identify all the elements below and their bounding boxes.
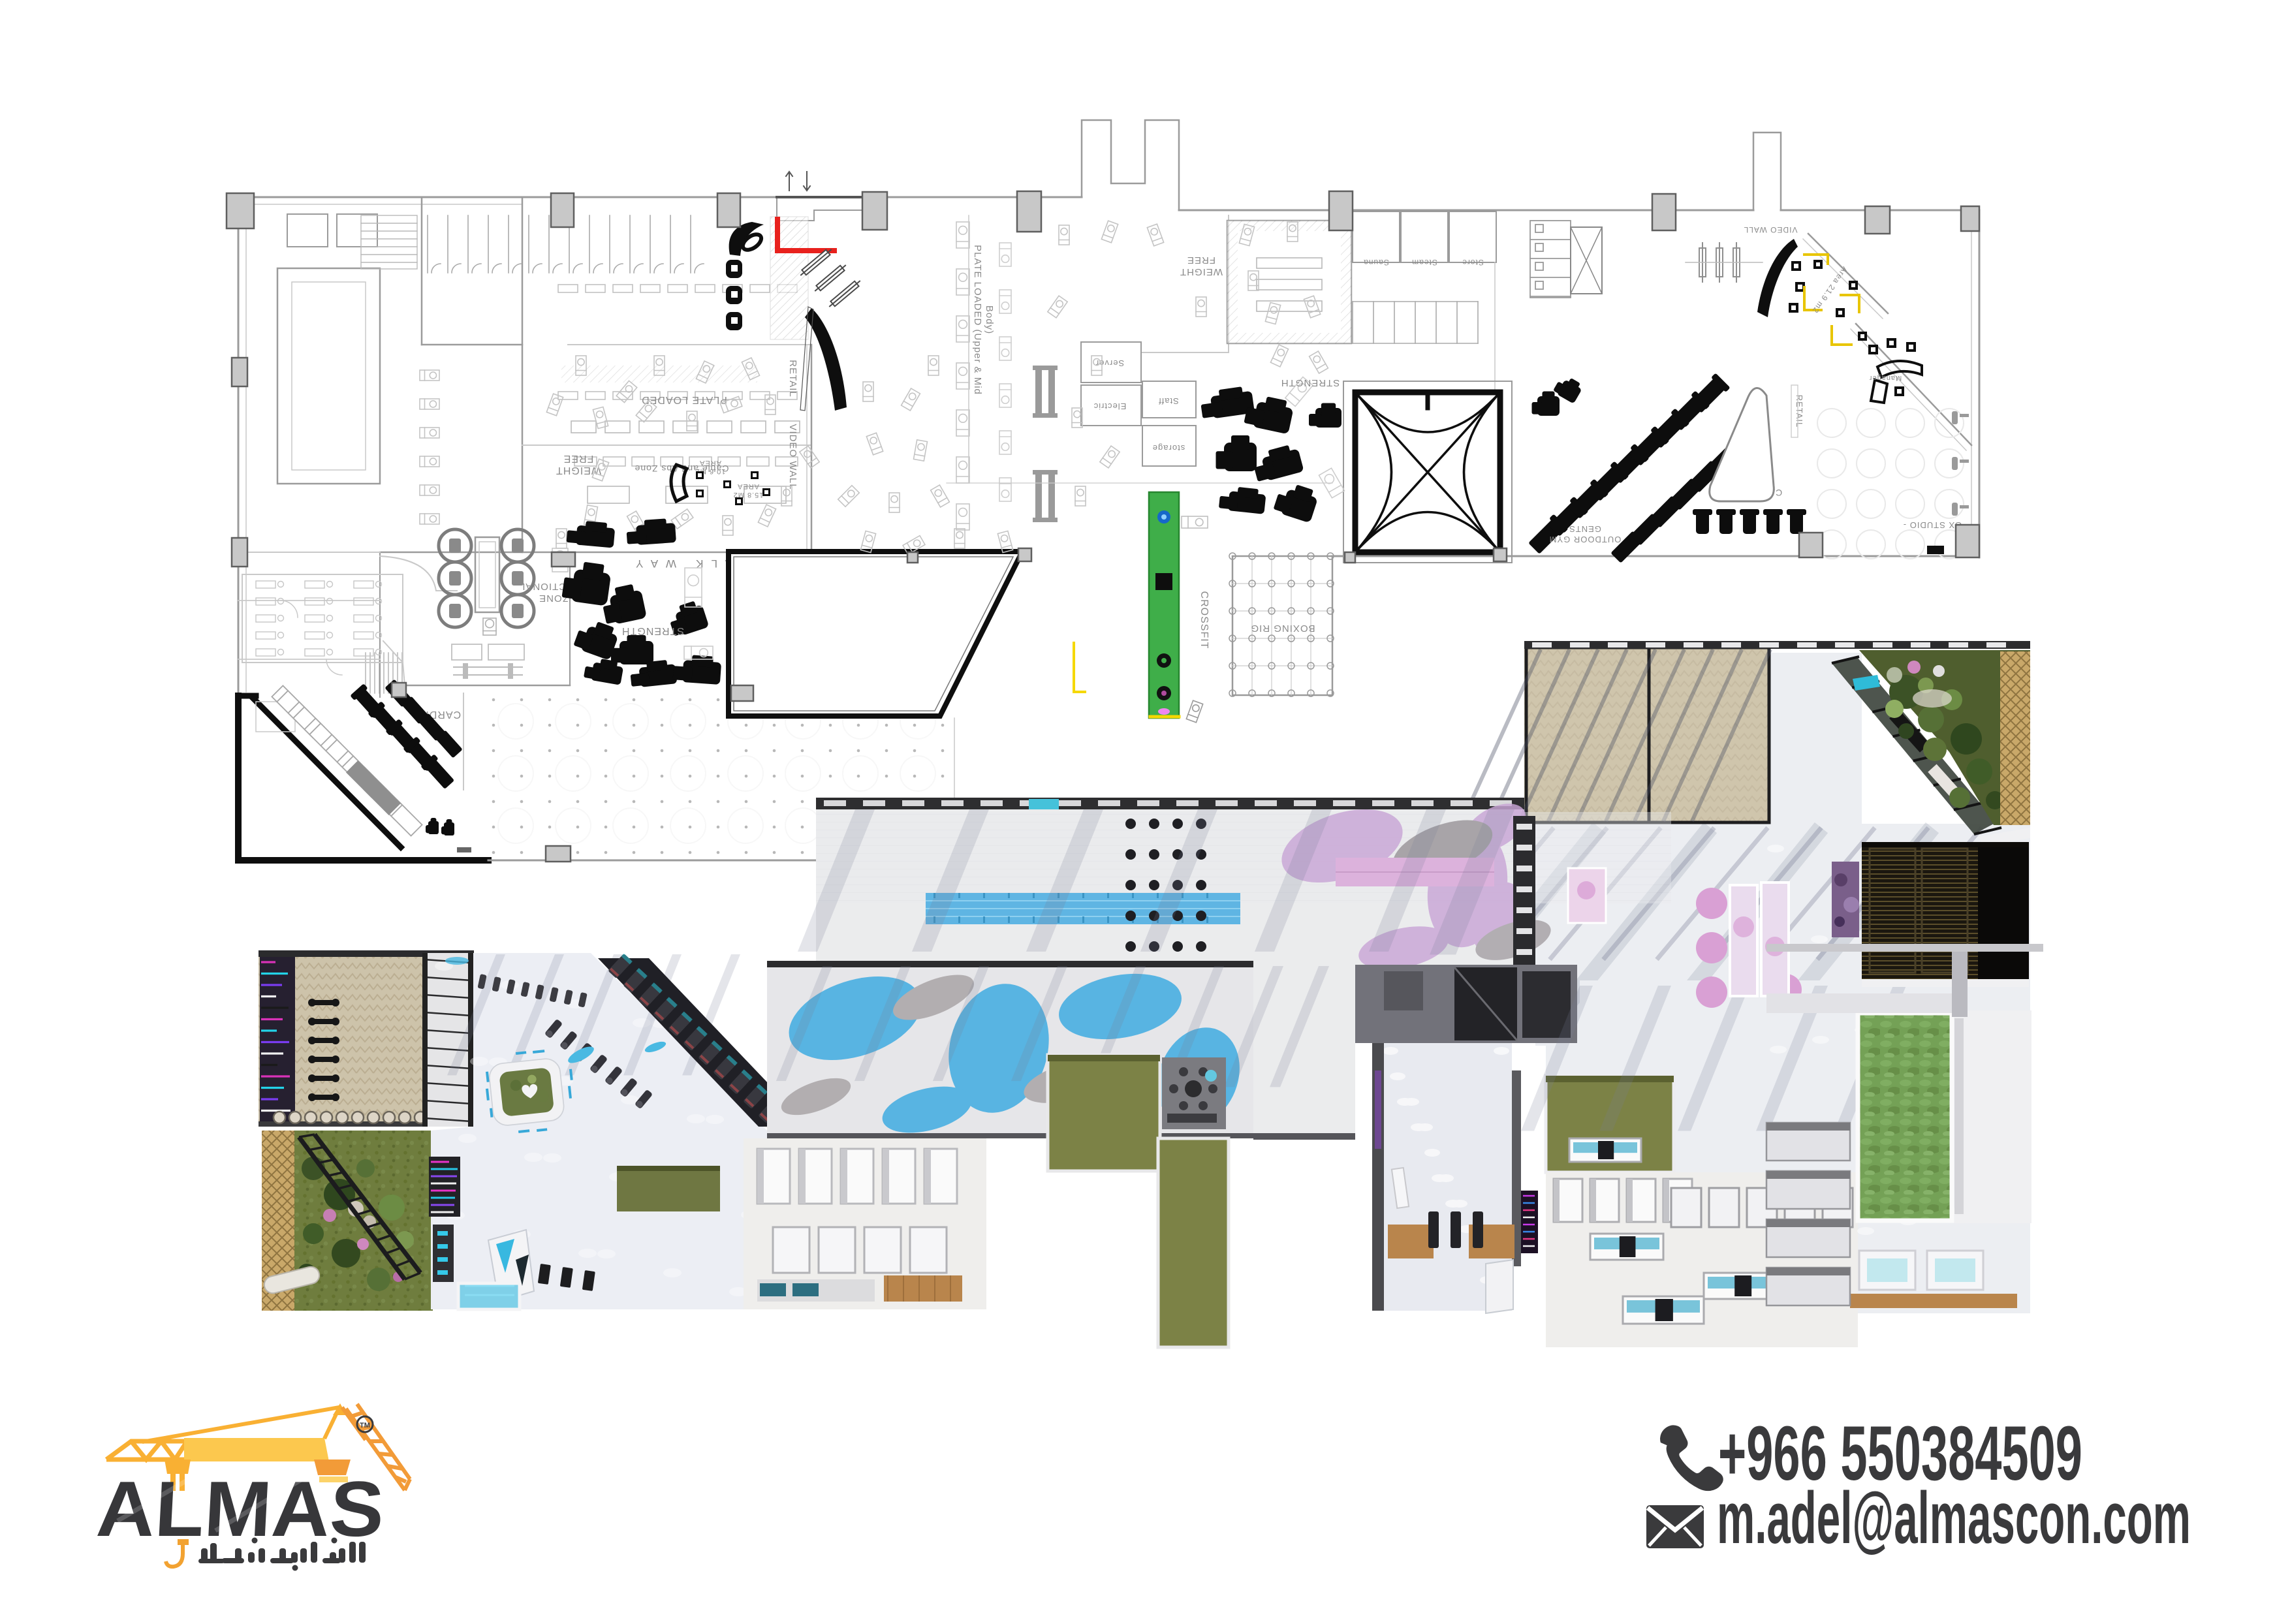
svg-text:RETAIL: RETAIL <box>787 360 798 397</box>
svg-text:OUTDOOR GYM: OUTDOOR GYM <box>1549 535 1622 544</box>
svg-text:STRENGTH: STRENGTH <box>621 625 684 636</box>
svg-text:GENTS: GENTS <box>1569 524 1601 534</box>
svg-text:CROSSFIT: CROSSFIT <box>1199 591 1210 649</box>
svg-text:Store: Store <box>1462 258 1484 267</box>
svg-text:STRENGTH: STRENGTH <box>1281 377 1340 388</box>
svg-text:AREA: AREA <box>737 482 759 490</box>
svg-text:Manager: Manager <box>1869 374 1902 382</box>
svg-text:WEIGHT: WEIGHT <box>1180 266 1223 277</box>
svg-text:Body): Body) <box>984 305 995 334</box>
svg-text:GX STUDIO -: GX STUDIO - <box>1903 520 1962 530</box>
svg-text:PLATE LOADED: PLATE LOADED <box>641 394 727 405</box>
svg-text:RETAIL: RETAIL <box>1795 395 1804 428</box>
svg-text:FREE: FREE <box>563 453 594 464</box>
svg-text:m.adel@almascon.com: m.adel@almascon.com <box>1717 1477 2191 1559</box>
svg-text:VIDEO WALL: VIDEO WALL <box>1744 225 1798 234</box>
svg-text:BOXING RIG: BOXING RIG <box>1250 623 1315 634</box>
svg-text:TM: TM <box>360 1422 370 1429</box>
svg-text:VIDEO WALL: VIDEO WALL <box>787 424 798 490</box>
svg-text:Sauna: Sauna <box>1363 258 1389 267</box>
svg-text:Staff: Staff <box>1158 396 1179 406</box>
svg-text:AREA: AREA <box>699 459 721 467</box>
svg-text:storage: storage <box>1152 443 1185 453</box>
svg-text:FREE: FREE <box>1187 255 1216 266</box>
svg-text:Steam: Steam <box>1411 258 1437 267</box>
svg-text:Electric: Electric <box>1093 401 1127 411</box>
svg-text:PLATE LOADED (Upper & Mid: PLATE LOADED (Upper & Mid <box>972 245 983 395</box>
